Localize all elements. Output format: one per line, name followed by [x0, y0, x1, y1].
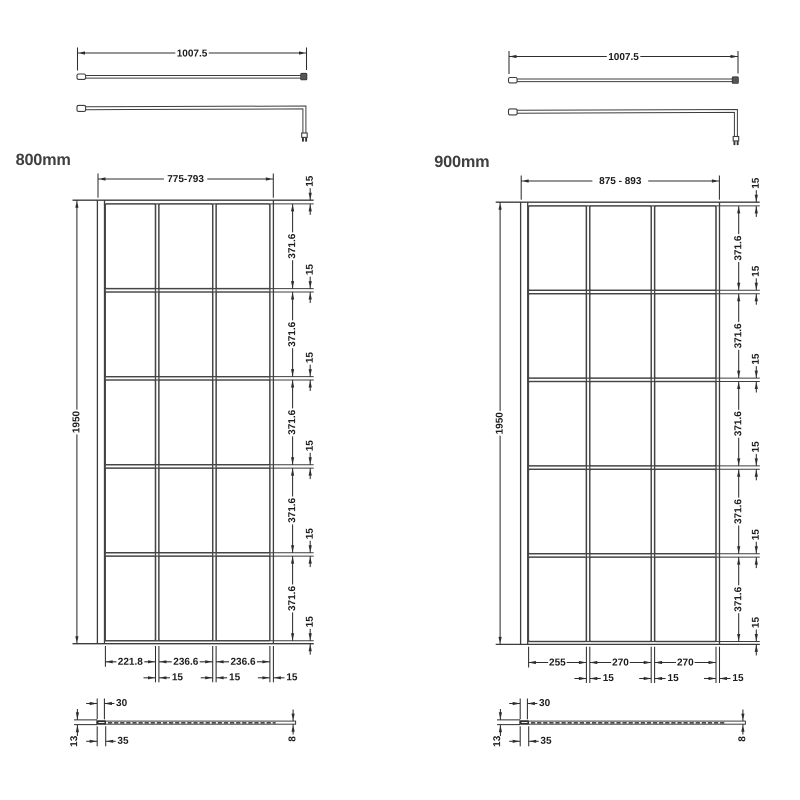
svg-text:30: 30 [539, 698, 551, 709]
svg-text:35: 35 [117, 736, 129, 747]
svg-text:8: 8 [737, 736, 748, 742]
svg-text:1950: 1950 [71, 410, 82, 433]
svg-text:371.6: 371.6 [733, 586, 744, 611]
svg-text:1007.5: 1007.5 [177, 48, 208, 59]
svg-text:15: 15 [751, 616, 762, 628]
svg-text:255: 255 [549, 657, 566, 668]
svg-text:1950: 1950 [495, 412, 506, 435]
svg-text:13: 13 [492, 735, 503, 747]
svg-text:15: 15 [305, 264, 316, 276]
svg-text:371.6: 371.6 [287, 497, 298, 522]
svg-text:15: 15 [751, 529, 762, 541]
svg-text:15: 15 [305, 616, 316, 628]
svg-text:371.6: 371.6 [733, 323, 744, 348]
svg-text:15: 15 [305, 440, 316, 452]
svg-text:15: 15 [305, 175, 316, 187]
svg-text:371.6: 371.6 [287, 233, 298, 258]
svg-text:15: 15 [751, 177, 762, 189]
svg-text:15: 15 [286, 672, 298, 683]
svg-text:221.8: 221.8 [118, 657, 143, 668]
svg-text:35: 35 [540, 736, 552, 747]
svg-text:900mm: 900mm [434, 153, 489, 171]
svg-text:15: 15 [229, 672, 241, 683]
svg-text:15: 15 [668, 673, 680, 684]
svg-text:15: 15 [751, 265, 762, 277]
svg-text:775-793: 775-793 [167, 174, 204, 185]
svg-text:1007.5: 1007.5 [608, 52, 639, 63]
svg-text:371.6: 371.6 [733, 235, 744, 260]
svg-text:30: 30 [116, 698, 128, 709]
svg-text:236.6: 236.6 [173, 657, 198, 668]
svg-text:8: 8 [287, 736, 298, 742]
svg-text:875 - 893: 875 - 893 [599, 176, 642, 187]
svg-text:15: 15 [751, 353, 762, 365]
svg-text:15: 15 [305, 528, 316, 540]
svg-text:15: 15 [172, 672, 184, 683]
svg-text:236.6: 236.6 [230, 657, 255, 668]
svg-text:800mm: 800mm [16, 151, 71, 169]
svg-text:15: 15 [751, 441, 762, 453]
svg-text:15: 15 [603, 673, 615, 684]
svg-text:371.6: 371.6 [287, 586, 298, 611]
svg-text:371.6: 371.6 [287, 409, 298, 434]
svg-text:371.6: 371.6 [287, 321, 298, 346]
svg-text:15: 15 [732, 673, 744, 684]
svg-text:371.6: 371.6 [733, 499, 744, 524]
svg-text:13: 13 [69, 735, 80, 747]
svg-text:270: 270 [677, 657, 694, 668]
svg-text:270: 270 [612, 657, 629, 668]
svg-text:371.6: 371.6 [733, 411, 744, 436]
svg-text:15: 15 [305, 352, 316, 364]
